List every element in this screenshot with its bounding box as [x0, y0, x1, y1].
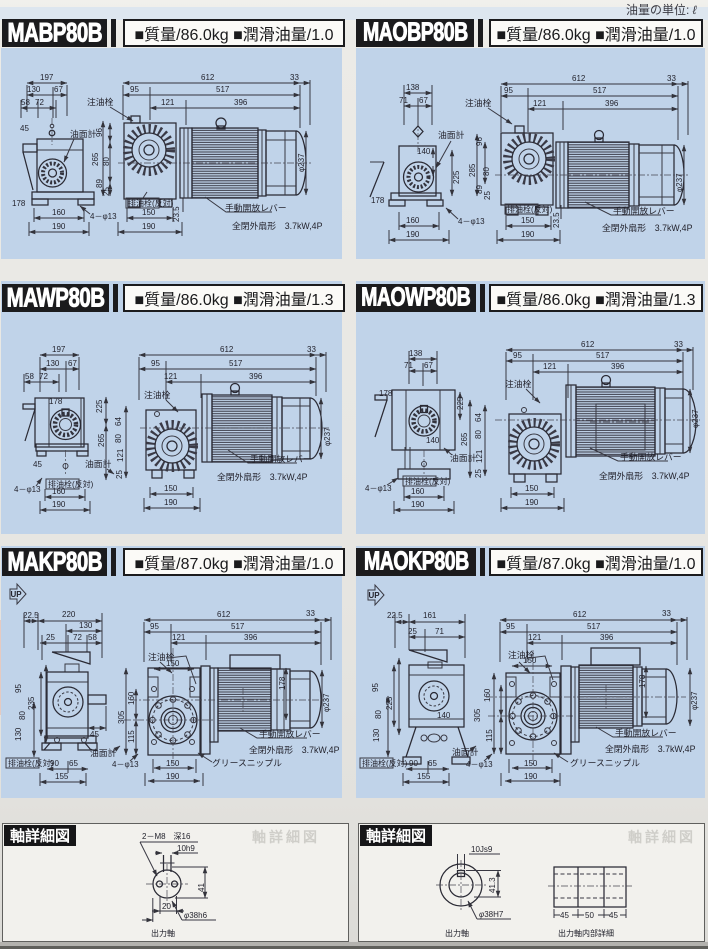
svg-text:65: 65 [69, 759, 78, 768]
svg-text:67: 67 [419, 96, 428, 105]
svg-text:注油栓: 注油栓 [505, 378, 532, 389]
svg-text:45: 45 [90, 730, 99, 739]
svg-text:手動開放レバー: 手動開放レバー [620, 451, 682, 462]
svg-text:グリースニップル: グリースニップル [570, 757, 640, 768]
svg-text:190: 190 [52, 500, 66, 509]
svg-text:225: 225 [95, 399, 104, 413]
svg-text:80: 80 [482, 167, 491, 176]
svg-text:130: 130 [372, 728, 381, 742]
svg-text:80: 80 [114, 434, 123, 443]
svg-text:225: 225 [385, 696, 394, 710]
svg-text:115: 115 [485, 729, 494, 742]
svg-text:80: 80 [102, 157, 111, 166]
svg-text:140: 140 [417, 147, 431, 156]
svg-text:121: 121 [161, 98, 175, 107]
svg-text:油面計: 油面計 [90, 747, 117, 758]
svg-text:64: 64 [114, 417, 123, 426]
svg-text:160: 160 [52, 487, 66, 496]
svg-text:注油栓: 注油栓 [144, 389, 171, 400]
svg-text:72: 72 [35, 98, 44, 107]
svg-text:45: 45 [33, 460, 42, 469]
svg-text:φ38h6: φ38h6 [184, 911, 208, 920]
svg-text:67: 67 [54, 85, 63, 94]
svg-text:612: 612 [581, 340, 595, 349]
svg-text:178: 178 [12, 199, 26, 208]
svg-text:96: 96 [475, 137, 484, 146]
svg-text:160: 160 [411, 487, 425, 496]
svg-text:121: 121 [116, 448, 125, 462]
svg-text:265: 265 [460, 432, 469, 446]
svg-text:全閉外扇形 3.7kW,4P: 全閉外扇形 3.7kW,4P [605, 743, 696, 754]
svg-text:130: 130 [79, 621, 93, 630]
svg-text:140: 140 [426, 436, 440, 445]
svg-text:197: 197 [40, 73, 54, 82]
svg-text:φ237: φ237 [297, 153, 306, 172]
svg-text:161: 161 [423, 611, 437, 620]
svg-text:190: 190 [411, 500, 425, 509]
svg-text:121: 121 [533, 99, 547, 108]
svg-text:612: 612 [220, 345, 234, 354]
svg-text:4－φ13: 4－φ13 [112, 760, 139, 769]
svg-text:45: 45 [560, 911, 569, 920]
svg-text:396: 396 [249, 372, 263, 381]
svg-text:121: 121 [528, 633, 542, 642]
svg-text:140: 140 [437, 711, 451, 720]
svg-text:33: 33 [662, 609, 671, 618]
svg-text:160: 160 [406, 216, 420, 225]
svg-text:121: 121 [172, 633, 186, 642]
svg-text:96: 96 [95, 128, 104, 137]
svg-text:150: 150 [142, 208, 156, 217]
svg-text:4－φ13: 4－φ13 [14, 485, 41, 494]
svg-text:95: 95 [150, 622, 159, 631]
svg-text:121: 121 [543, 362, 557, 371]
svg-text:UP: UP [11, 590, 23, 599]
svg-text:33: 33 [674, 340, 683, 349]
svg-text:612: 612 [201, 73, 215, 82]
svg-text:160: 160 [52, 208, 66, 217]
svg-text:396: 396 [234, 98, 248, 107]
svg-text:25: 25 [483, 191, 492, 200]
svg-text:手動開放レバー: 手動開放レバー [225, 202, 287, 213]
svg-text:2－M8 深16: 2－M8 深16 [142, 832, 191, 841]
svg-text:95: 95 [513, 351, 522, 360]
svg-text:45: 45 [20, 124, 29, 133]
svg-text:178: 178 [278, 676, 287, 690]
svg-text:全閉外扇形 3.7kW,4P: 全閉外扇形 3.7kW,4P [602, 222, 693, 233]
svg-text:71: 71 [404, 361, 413, 370]
svg-text:517: 517 [593, 86, 607, 95]
svg-text:612: 612 [217, 610, 231, 619]
svg-text:注油栓: 注油栓 [87, 96, 114, 107]
svg-text:178: 178 [638, 674, 647, 688]
svg-text:φ237: φ237 [675, 173, 684, 192]
svg-text:190: 190 [166, 772, 180, 781]
svg-text:612: 612 [572, 74, 586, 83]
svg-text:油面計: 油面計 [438, 129, 465, 140]
svg-text:58: 58 [21, 98, 30, 107]
svg-text:197: 197 [52, 345, 66, 354]
svg-text:95: 95 [504, 86, 513, 95]
svg-text:305: 305 [473, 708, 482, 722]
svg-text:80: 80 [474, 430, 483, 439]
svg-text:33: 33 [290, 73, 299, 82]
svg-text:グリースニップル: グリースニップル [212, 757, 282, 768]
svg-text:10Js9: 10Js9 [471, 845, 493, 854]
svg-text:130: 130 [27, 85, 41, 94]
svg-text:23.5: 23.5 [552, 212, 561, 228]
svg-text:67: 67 [424, 361, 433, 370]
svg-text:190: 190 [406, 230, 420, 239]
svg-text:50: 50 [585, 911, 594, 920]
svg-text:138: 138 [409, 349, 423, 358]
svg-text:190: 190 [52, 222, 66, 231]
svg-text:41: 41 [197, 883, 206, 892]
svg-text:220: 220 [62, 610, 76, 619]
svg-text:305: 305 [117, 710, 126, 724]
svg-text:全閉外扇形 3.7kW,4P: 全閉外扇形 3.7kW,4P [232, 220, 323, 231]
svg-text:出力軸: 出力軸 [445, 928, 469, 938]
svg-text:65: 65 [428, 759, 437, 768]
svg-text:67: 67 [68, 359, 77, 368]
svg-text:油面計: 油面計 [70, 128, 97, 139]
svg-text:出力軸: 出力軸 [151, 928, 175, 938]
svg-text:190: 190 [142, 222, 156, 231]
svg-text:58: 58 [88, 633, 97, 642]
svg-text:油面計: 油面計 [85, 458, 112, 469]
svg-text:排油栓(反対): 排油栓(反対) [128, 198, 174, 208]
svg-text:285: 285 [468, 163, 477, 177]
svg-text:517: 517 [229, 359, 243, 368]
svg-text:64: 64 [474, 413, 483, 422]
svg-text:396: 396 [605, 99, 619, 108]
svg-text:121: 121 [164, 372, 178, 381]
svg-text:150: 150 [166, 759, 180, 768]
svg-text:25: 25 [408, 627, 417, 636]
svg-text:出力軸内部詳細: 出力軸内部詳細 [558, 928, 614, 938]
svg-text:排油栓(反対): 排油栓(反対) [362, 758, 408, 768]
svg-text:190: 190 [525, 498, 539, 507]
svg-text:225: 225 [456, 396, 465, 410]
svg-text:178: 178 [49, 397, 63, 406]
svg-text:190: 190 [524, 772, 538, 781]
svg-text:4－φ13: 4－φ13 [90, 212, 117, 221]
svg-text:33: 33 [307, 345, 316, 354]
svg-text:45: 45 [609, 911, 618, 920]
svg-text:265: 265 [97, 433, 106, 447]
svg-text:φ38H7: φ38H7 [479, 910, 504, 919]
svg-text:90: 90 [50, 759, 59, 768]
svg-text:10h9: 10h9 [177, 844, 195, 853]
svg-text:89: 89 [95, 179, 104, 188]
svg-text:71: 71 [435, 627, 444, 636]
svg-text:155: 155 [417, 772, 431, 781]
svg-text:90: 90 [409, 759, 418, 768]
svg-text:UP: UP [369, 591, 381, 600]
svg-text:排油栓(反対): 排油栓(反対) [507, 204, 553, 214]
svg-text:手動開放レバー: 手動開放レバー [615, 727, 677, 738]
svg-text:396: 396 [244, 633, 258, 642]
svg-text:油面計: 油面計 [450, 452, 477, 463]
svg-text:71: 71 [399, 96, 408, 105]
svg-text:25: 25 [46, 633, 55, 642]
svg-text:396: 396 [611, 362, 625, 371]
svg-text:22.5: 22.5 [23, 611, 39, 620]
svg-text:150: 150 [521, 216, 535, 225]
svg-text:全閉外扇形 3.7kW,4P: 全閉外扇形 3.7kW,4P [217, 471, 308, 482]
svg-text:φ237: φ237 [691, 409, 700, 428]
svg-text:25: 25 [102, 187, 111, 196]
svg-text:150: 150 [164, 484, 178, 493]
svg-text:33: 33 [306, 609, 315, 618]
svg-text:φ237: φ237 [690, 691, 699, 710]
svg-text:72: 72 [73, 633, 82, 642]
svg-text:注油栓: 注油栓 [465, 97, 492, 108]
svg-text:95: 95 [14, 684, 23, 693]
svg-text:25: 25 [474, 469, 483, 478]
svg-text:178: 178 [379, 389, 393, 398]
svg-text:517: 517 [216, 85, 230, 94]
svg-text:150: 150 [525, 484, 539, 493]
svg-text:265: 265 [91, 152, 100, 166]
svg-text:517: 517 [587, 622, 601, 631]
svg-text:95: 95 [506, 622, 515, 631]
svg-text:41.3: 41.3 [488, 877, 497, 893]
svg-text:25: 25 [115, 470, 124, 479]
svg-text:手動開放レバー: 手動開放レバー [250, 453, 312, 464]
svg-text:150: 150 [524, 759, 538, 768]
svg-text:全閉外扇形 3.7kW,4P: 全閉外扇形 3.7kW,4P [599, 470, 690, 481]
svg-text:33: 33 [667, 74, 676, 83]
svg-text:φ237: φ237 [322, 693, 331, 712]
svg-text:235: 235 [27, 696, 36, 710]
svg-text:95: 95 [151, 359, 160, 368]
svg-text:80: 80 [18, 711, 27, 720]
svg-text:95: 95 [371, 683, 380, 692]
svg-text:130: 130 [46, 359, 60, 368]
svg-text:φ237: φ237 [323, 427, 332, 446]
svg-text:190: 190 [164, 498, 178, 507]
svg-text:178: 178 [371, 196, 385, 205]
svg-text:全閉外扇形 3.7kW,4P: 全閉外扇形 3.7kW,4P [249, 744, 340, 755]
svg-text:155: 155 [55, 772, 69, 781]
svg-text:80: 80 [374, 710, 383, 719]
svg-text:58: 58 [25, 372, 34, 381]
svg-text:130: 130 [14, 727, 23, 741]
svg-text:23.5: 23.5 [172, 206, 181, 222]
svg-text:612: 612 [573, 610, 587, 619]
svg-text:225: 225 [452, 170, 461, 184]
svg-text:160: 160 [127, 691, 136, 705]
svg-text:4－φ13: 4－φ13 [365, 484, 392, 493]
svg-text:160: 160 [483, 688, 492, 702]
svg-text:138: 138 [406, 83, 420, 92]
svg-text:20: 20 [162, 902, 171, 911]
svg-text:517: 517 [596, 351, 610, 360]
svg-text:115: 115 [127, 730, 136, 743]
svg-text:手動開放レバー: 手動開放レバー [259, 728, 321, 739]
svg-text:396: 396 [600, 633, 614, 642]
svg-text:排油栓(反対): 排油栓(反対) [405, 476, 451, 486]
svg-text:517: 517 [231, 622, 245, 631]
svg-text:4－φ13: 4－φ13 [466, 760, 493, 769]
svg-text:手動開放レバー: 手動開放レバー [613, 205, 675, 216]
svg-text:排油栓(反対): 排油栓(反対) [8, 758, 54, 768]
svg-text:95: 95 [130, 85, 139, 94]
svg-text:4－φ13: 4－φ13 [458, 217, 485, 226]
svg-text:190: 190 [521, 230, 535, 239]
